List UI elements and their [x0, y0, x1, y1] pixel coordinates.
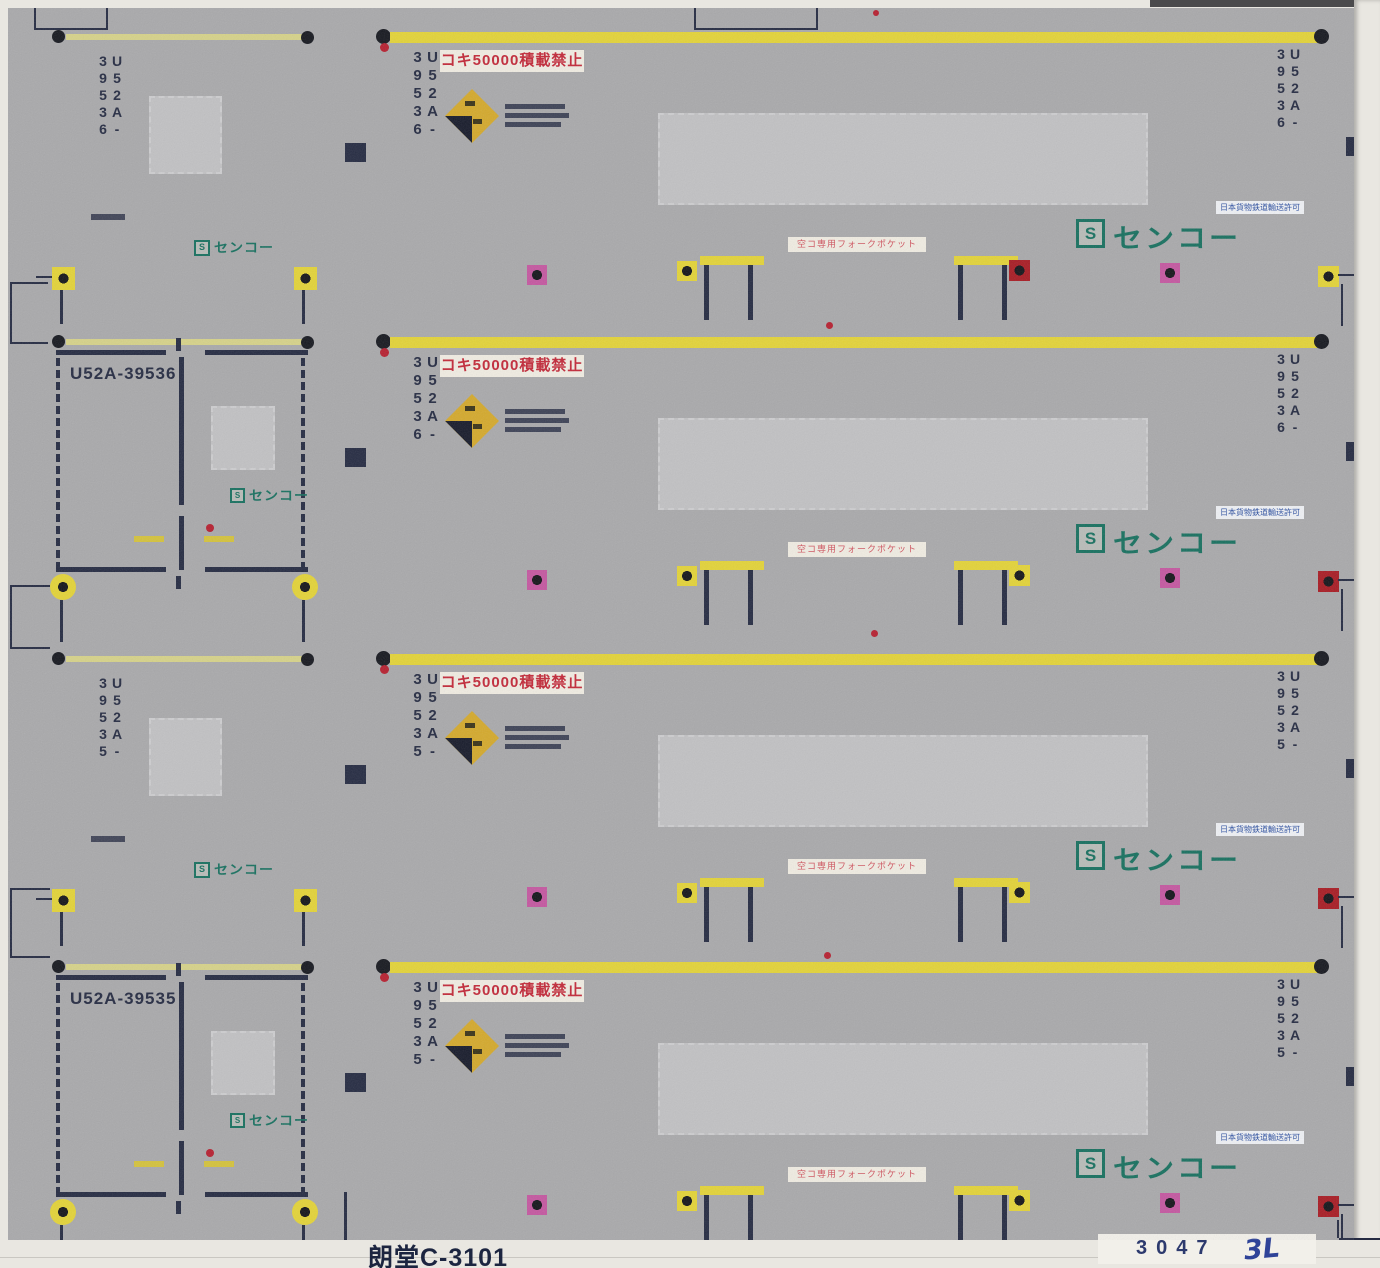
fork-pocket-leg — [748, 265, 753, 320]
micro-yellow-text — [134, 1161, 164, 1167]
micro-spec-text — [505, 1043, 569, 1048]
diamond-micro-mark — [473, 119, 482, 124]
registration-dot — [380, 43, 389, 52]
product-code: 朗堂C-3101 — [368, 1238, 508, 1268]
door-center-post — [179, 516, 184, 570]
diamond-micro-mark — [473, 741, 482, 746]
senko-logo-mark-small: S — [194, 862, 210, 878]
micro-spec-text — [505, 113, 569, 118]
cut-mark — [1338, 579, 1354, 581]
fork-pocket-label: 空コ専用フォークポケット — [788, 542, 926, 557]
micro-spec-text — [505, 122, 561, 127]
cut-mark — [1338, 274, 1354, 276]
door-frame-bottom — [205, 567, 308, 572]
accent-square-corner-right — [1318, 571, 1339, 592]
senko-logo-text-small: センコー — [249, 1111, 309, 1129]
fork-pocket-leg — [958, 265, 963, 320]
door-frame-top — [56, 350, 166, 355]
corner-fitting-left — [52, 267, 75, 290]
accent-square-yellow — [677, 1191, 697, 1211]
rivet-dot — [301, 336, 314, 349]
diamond-dark-quadrant — [445, 1019, 499, 1073]
senko-logo-text: センコー — [1113, 522, 1241, 561]
paper-edge-left — [0, 0, 8, 1268]
rivet-dot — [301, 653, 314, 666]
corner-fitting-left — [50, 1199, 76, 1225]
decal-blank-patch-large — [658, 735, 1148, 827]
door-frame-top — [205, 975, 308, 980]
serial-vertical-mid: U52A-39535 — [410, 671, 440, 839]
registration-dot — [380, 348, 389, 357]
fork-pocket-leg — [1002, 570, 1007, 625]
micro-spec-text — [505, 735, 569, 740]
roof-rail-yellow — [390, 962, 1318, 973]
fork-pocket-leg — [1002, 887, 1007, 942]
paper-edge-shadow — [1150, 0, 1356, 7]
decal-blank-patch — [149, 718, 222, 796]
accent-square-fork-right — [1009, 565, 1030, 586]
roof-rail-pale — [66, 34, 302, 40]
door-frame-right — [301, 358, 305, 570]
fork-pocket-leg — [704, 887, 709, 942]
diamond-dark-quadrant — [445, 89, 499, 143]
accent-square-magenta — [527, 570, 547, 590]
diamond-micro-mark — [473, 1049, 482, 1054]
approval-label: 日本貨物鉄道輸送許可 — [1216, 506, 1304, 519]
door-frame-right — [301, 983, 305, 1195]
micro-spec-text — [505, 418, 569, 423]
fork-pocket-leg — [748, 570, 753, 625]
corner-fitting-right — [292, 1199, 318, 1225]
senko-logo-mark: S — [1076, 219, 1105, 248]
registration-dot — [380, 973, 389, 982]
cut-mark — [176, 576, 181, 589]
senko-logo-mark-small: S — [230, 1113, 245, 1128]
fork-pocket-leg — [748, 887, 753, 942]
micro-spec-text — [505, 1034, 565, 1039]
accent-square-yellow — [677, 883, 697, 903]
accent-square-corner-right — [1318, 1196, 1339, 1217]
micro-spec-text — [505, 104, 565, 109]
rivet-dot — [376, 29, 391, 44]
fork-pocket-bar — [700, 878, 764, 887]
micro-spec-text — [505, 409, 565, 414]
decal-blank-patch — [211, 406, 275, 470]
serial-door-end: U52A-39536 — [70, 364, 176, 384]
door-frame-bottom — [56, 1192, 166, 1197]
door-frame-left — [56, 983, 60, 1195]
accent-square-magenta — [527, 1195, 547, 1215]
vent-square — [345, 448, 366, 467]
corner-fitting-right — [292, 574, 318, 600]
corner-fitting-right — [294, 267, 317, 290]
decal-blank-patch — [211, 1031, 275, 1095]
door-frame-bottom — [205, 1192, 308, 1197]
no-load-warning-label: コキ50000積載禁止 — [440, 672, 584, 694]
senko-logo-mark: S — [1076, 1149, 1105, 1178]
accent-square-corner-right — [1318, 266, 1339, 287]
fork-pocket-leg — [958, 570, 963, 625]
fork-pocket-bar — [700, 256, 764, 265]
door-frame-left — [56, 358, 60, 570]
fork-pocket-leg — [1002, 265, 1007, 320]
cut-mark — [1338, 1204, 1354, 1206]
cut-mark — [302, 290, 305, 324]
vent-square — [345, 1073, 366, 1092]
micro-yellow-text — [204, 1161, 234, 1167]
decal-blank-patch-large — [658, 418, 1148, 510]
paper-edge-right — [1354, 0, 1380, 1268]
door-center-post — [179, 1141, 184, 1195]
senko-logo-text-small: センコー — [249, 486, 309, 504]
cut-mark — [1341, 589, 1343, 631]
door-center-post — [179, 357, 184, 505]
rivet-dot — [301, 31, 314, 44]
approval-label: 日本貨物鉄道輸送許可 — [1216, 201, 1304, 214]
registration-dot — [206, 524, 214, 532]
diamond-micro-mark — [465, 101, 475, 106]
rivet-dot — [1314, 334, 1329, 349]
senko-logo-mark-small: S — [230, 488, 245, 503]
roof-rail-pale — [66, 656, 302, 662]
rivet-dot — [52, 30, 65, 43]
cut-mark — [1339, 1238, 1380, 1240]
registration-dot — [873, 10, 879, 16]
hazard-diamond-icon — [445, 394, 499, 448]
serial-vertical-mid: U52A-39536 — [410, 49, 440, 217]
cut-mark — [1338, 896, 1354, 898]
micro-spec-text — [505, 726, 565, 731]
cut-mark — [176, 338, 181, 351]
fork-pocket-bar — [700, 561, 764, 570]
roof-rail-pale — [66, 964, 302, 970]
senko-logo-mark: S — [1076, 841, 1105, 870]
cut-mark — [60, 912, 63, 946]
cut-mark — [36, 898, 52, 900]
cut-mark — [1341, 906, 1343, 948]
fork-pocket-leg — [704, 265, 709, 320]
serial-vertical-right: U52A-39535 — [1274, 976, 1302, 1126]
serial-vertical-mid: U52A-39536 — [410, 354, 440, 522]
senko-logo-text-small: センコー — [214, 238, 274, 256]
hazard-diamond-icon — [445, 1019, 499, 1073]
senko-logo-text: センコー — [1113, 1147, 1241, 1186]
roof-rail-pale — [66, 339, 302, 345]
accent-square-magenta — [1160, 885, 1180, 905]
micro-spec-text — [91, 836, 125, 842]
micro-spec-text — [505, 744, 561, 749]
accent-square-fork-right — [1009, 882, 1030, 903]
cut-mark — [1337, 1220, 1339, 1238]
accent-square-fork-right — [1009, 260, 1030, 281]
micro-yellow-text — [204, 536, 234, 542]
container-side-panel: U52A-39535 S センコー U52A-39535 コキ50000積載禁止 — [8, 963, 1354, 1268]
diamond-micro-mark — [473, 424, 482, 429]
accent-square-magenta — [527, 887, 547, 907]
door-frame-top — [56, 975, 166, 980]
senko-logo-mark: S — [1076, 524, 1105, 553]
decal-blank-patch-large — [658, 113, 1148, 205]
rivet-dot — [376, 959, 391, 974]
rivet-dot — [1314, 651, 1329, 666]
fork-pocket-label: 空コ専用フォークポケット — [788, 237, 926, 252]
fork-pocket-bar — [700, 1186, 764, 1195]
rivet-dot — [1314, 959, 1329, 974]
rivet-dot — [1314, 29, 1329, 44]
container-side-panel: U52A-39535 S センコー U52A-39535 コキ50000積載禁止… — [8, 655, 1354, 960]
diamond-dark-quadrant — [445, 394, 499, 448]
serial-door-end: U52A-39535 — [70, 989, 176, 1009]
rivet-dot — [52, 335, 65, 348]
accent-square-corner-right — [1318, 888, 1339, 909]
approval-label: 日本貨物鉄道輸送許可 — [1216, 1131, 1304, 1144]
diamond-micro-mark — [465, 406, 475, 411]
vent-square — [345, 765, 366, 784]
rivet-dot — [376, 651, 391, 666]
rivet-dot — [52, 960, 65, 973]
registration-dot — [380, 665, 389, 674]
rivet-dot — [301, 961, 314, 974]
stock-number-handwritten: 3L — [1243, 1232, 1282, 1266]
no-load-warning-label: コキ50000積載禁止 — [440, 50, 584, 72]
door-center-post — [179, 982, 184, 1130]
serial-vertical-left: U52A-39536 — [96, 53, 124, 193]
serial-vertical-mid: U52A-39535 — [410, 979, 440, 1147]
door-frame-bottom — [56, 567, 166, 572]
stock-number-printed: 3047 — [1136, 1237, 1217, 1260]
senko-logo-text: センコー — [1113, 217, 1241, 256]
decal-blank-patch — [149, 96, 222, 174]
senko-logo-mark-small: S — [194, 240, 210, 256]
no-load-warning-label: コキ50000積載禁止 — [440, 980, 584, 1002]
fork-pocket-label: 空コ専用フォークポケット — [788, 1167, 926, 1182]
fork-pocket-leg — [704, 570, 709, 625]
corner-fitting-left — [50, 574, 76, 600]
accent-square-yellow — [677, 261, 697, 281]
cut-mark — [302, 600, 305, 642]
cut-mark — [176, 1201, 181, 1214]
accent-square-magenta — [1160, 263, 1180, 283]
cut-mark — [302, 912, 305, 946]
decal-sheet: U52A-39536 S センコー U52A-39536 コキ50000積載禁止… — [8, 8, 1354, 1240]
serial-vertical-right: U52A-39535 — [1274, 668, 1302, 818]
senko-logo-text: センコー — [1113, 839, 1241, 878]
stock-number-label: 3047 3L — [1098, 1234, 1316, 1264]
accent-square-magenta — [1160, 1193, 1180, 1213]
cut-mark — [60, 600, 63, 642]
serial-vertical-right: U52A-39536 — [1274, 351, 1302, 501]
corner-fitting-right — [294, 889, 317, 912]
fork-pocket-leg — [958, 887, 963, 942]
accent-square-fork-right — [1009, 1190, 1030, 1211]
accent-square-magenta — [1160, 568, 1180, 588]
no-load-warning-label: コキ50000積載禁止 — [440, 355, 584, 377]
rivet-dot — [376, 334, 391, 349]
cut-mark — [34, 8, 108, 30]
cut-mark — [60, 290, 63, 324]
hazard-diamond-icon — [445, 89, 499, 143]
hazard-diamond-icon — [445, 711, 499, 765]
registration-dot — [206, 1149, 214, 1157]
roof-rail-yellow — [390, 32, 1318, 43]
accent-square-yellow — [677, 566, 697, 586]
photo-of-decal-sheet: U52A-39536 S センコー U52A-39536 コキ50000積載禁止… — [0, 0, 1380, 1268]
roof-rail-yellow — [390, 654, 1318, 665]
accent-square-magenta — [527, 265, 547, 285]
container-side-panel: U52A-39536 S センコー U52A-39536 コキ50000積載禁止 — [8, 338, 1354, 643]
micro-yellow-text — [134, 536, 164, 542]
cut-mark — [1341, 284, 1343, 326]
rivet-dot — [52, 652, 65, 665]
micro-spec-text — [505, 1052, 561, 1057]
decal-blank-patch-large — [658, 1043, 1148, 1135]
door-frame-top — [205, 350, 308, 355]
cut-mark — [694, 8, 818, 30]
senko-logo-text-small: センコー — [214, 860, 274, 878]
fork-pocket-label: 空コ専用フォークポケット — [788, 859, 926, 874]
corner-fitting-left — [52, 889, 75, 912]
serial-vertical-right: U52A-39536 — [1274, 46, 1302, 196]
container-side-panel: U52A-39536 S センコー U52A-39536 コキ50000積載禁止… — [8, 33, 1354, 338]
micro-spec-text — [91, 214, 125, 220]
diamond-dark-quadrant — [445, 711, 499, 765]
diamond-micro-mark — [465, 723, 475, 728]
cut-mark — [176, 963, 181, 976]
diamond-micro-mark — [465, 1031, 475, 1036]
serial-vertical-left: U52A-39535 — [96, 675, 124, 815]
cut-mark — [36, 276, 52, 278]
vent-square — [345, 143, 366, 162]
approval-label: 日本貨物鉄道輸送許可 — [1216, 823, 1304, 836]
roof-rail-yellow — [390, 337, 1318, 348]
micro-spec-text — [505, 427, 561, 432]
